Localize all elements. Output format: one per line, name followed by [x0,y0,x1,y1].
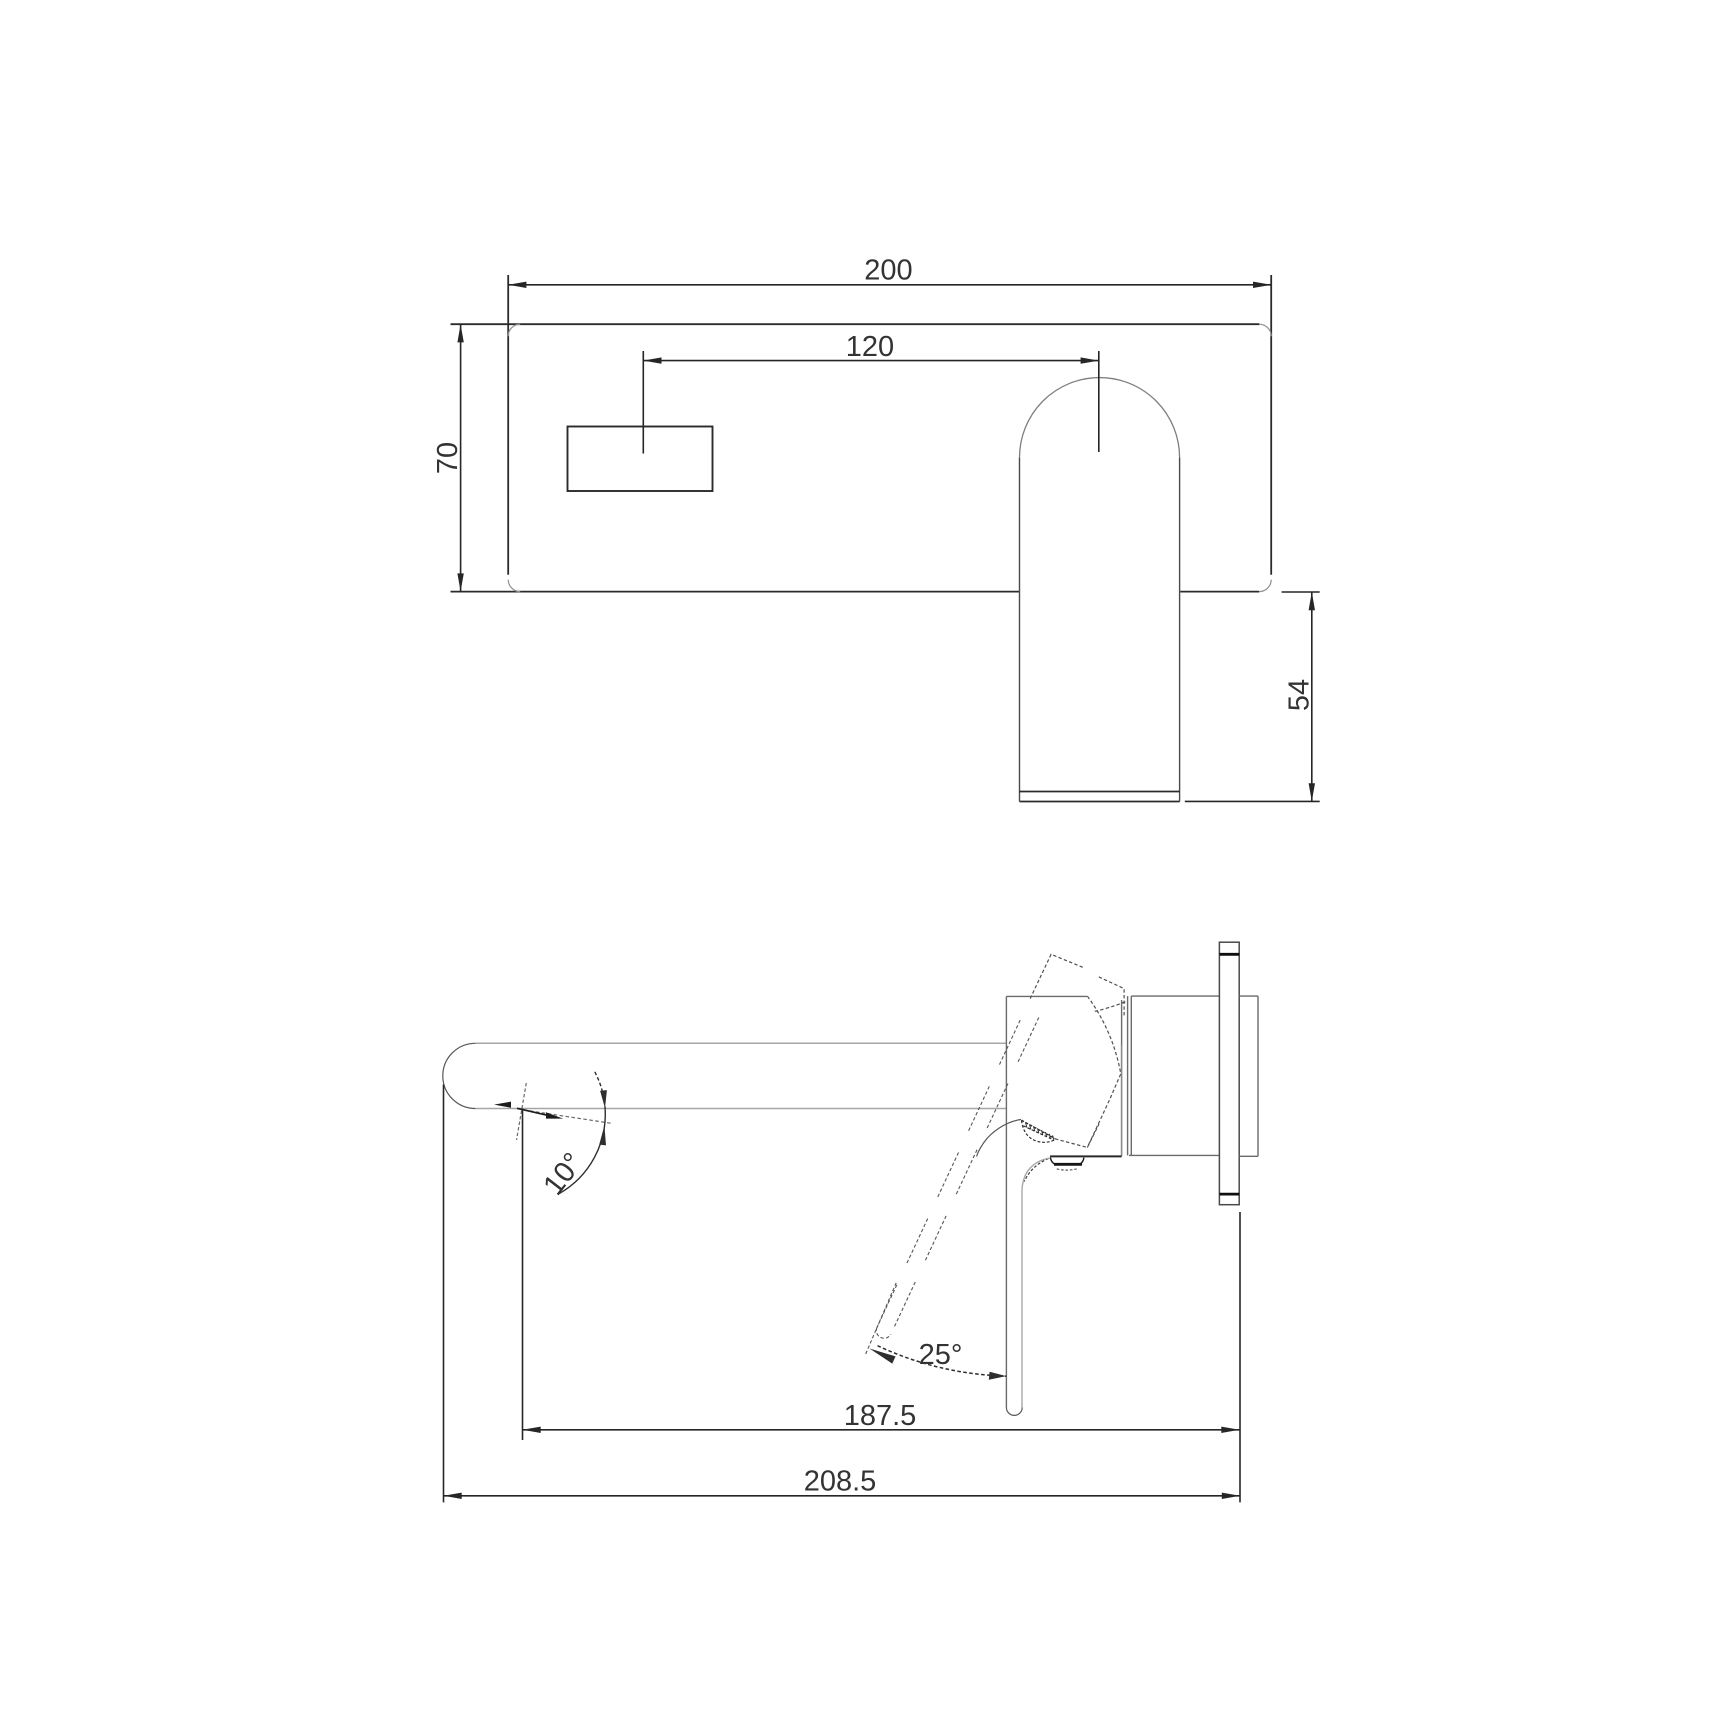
svg-text:70: 70 [432,442,464,474]
svg-text:187.5: 187.5 [844,1400,917,1432]
svg-text:54: 54 [1283,679,1315,711]
svg-text:120: 120 [846,331,894,363]
svg-text:25°: 25° [919,1339,963,1371]
svg-text:208.5: 208.5 [804,1466,877,1498]
svg-text:200: 200 [864,255,912,287]
